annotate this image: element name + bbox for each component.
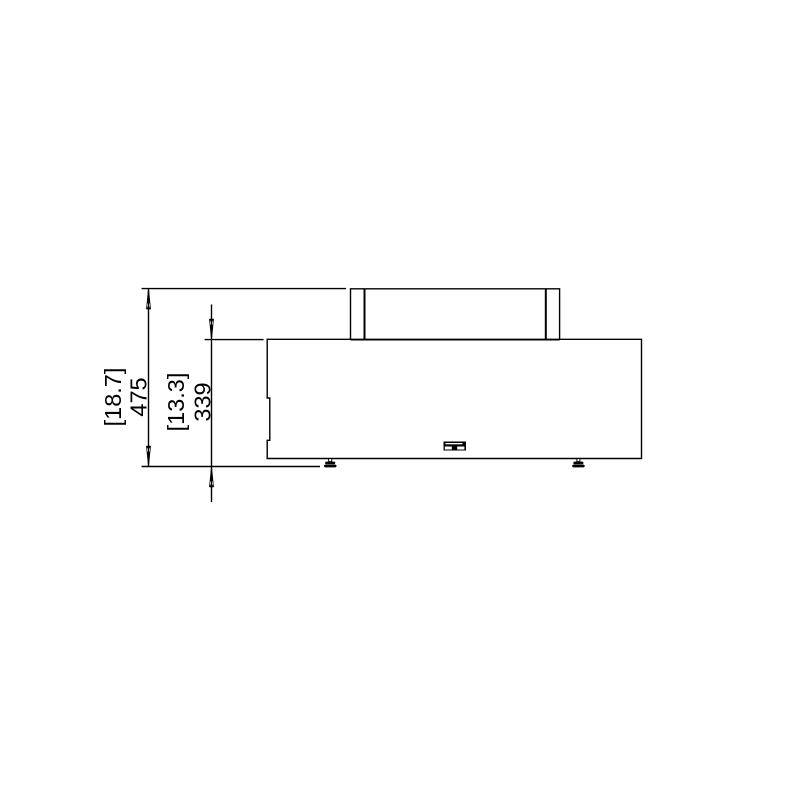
svg-text:[13.3]: [13.3] xyxy=(163,373,189,432)
svg-text:475: 475 xyxy=(125,377,151,416)
svg-text:[18.7]: [18.7] xyxy=(100,368,126,427)
svg-text:339: 339 xyxy=(189,382,215,421)
